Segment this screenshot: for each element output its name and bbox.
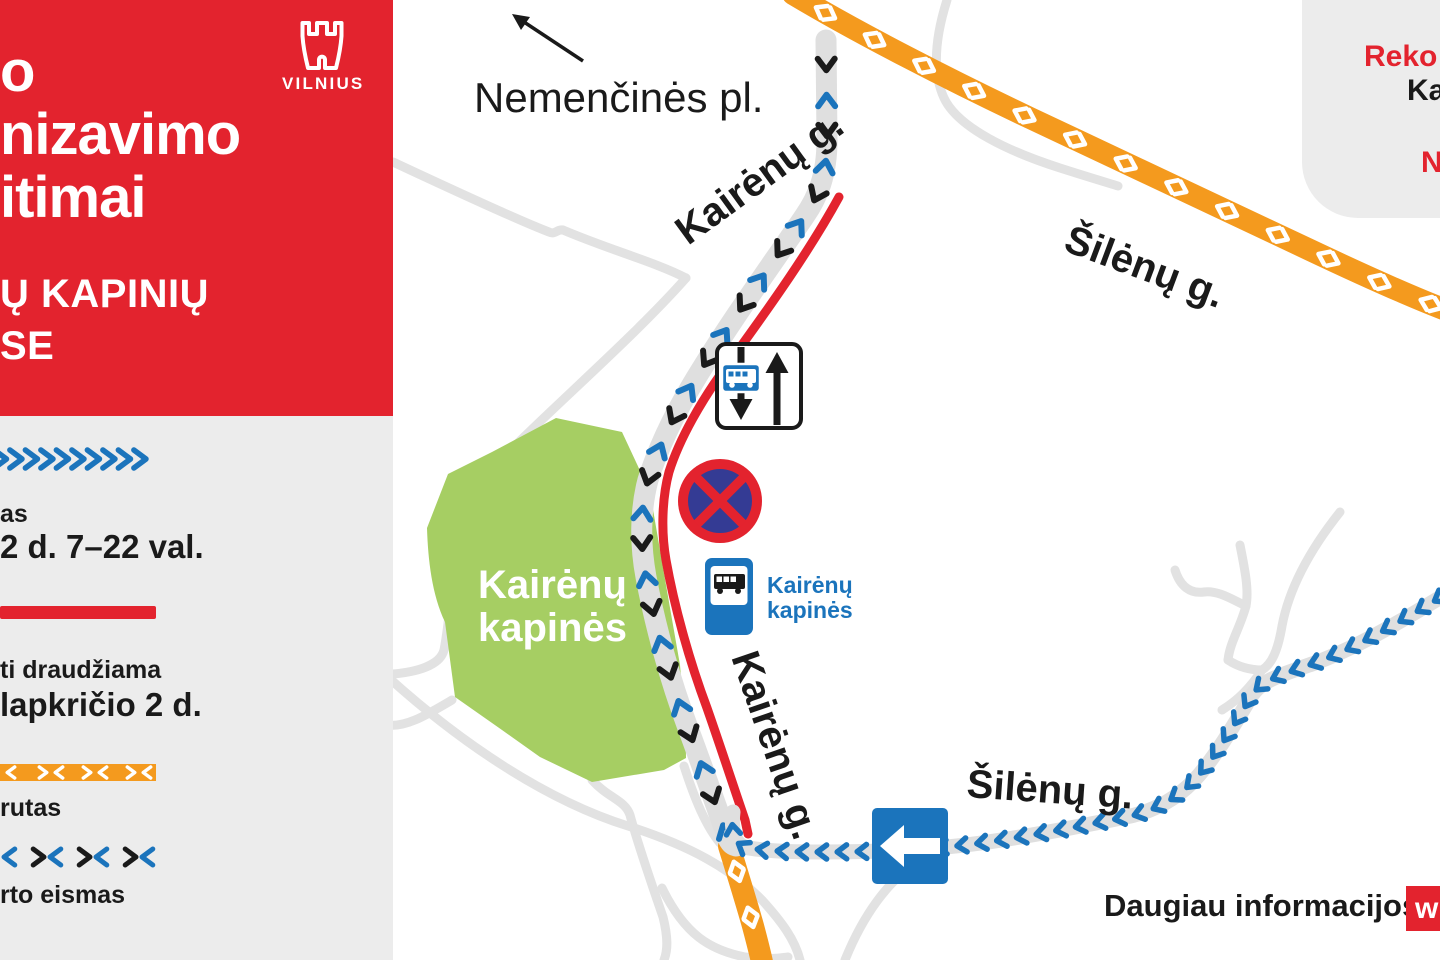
more-info-badge: w [1406,886,1440,931]
contraflow-bus-lane-sign [717,344,801,428]
vilnius-logo: VILNIUS [282,12,362,94]
bus-stop-label-line2: kapinės [767,597,853,623]
silenu-street-label-bottom: Šilėnų g. [965,760,1134,818]
cemetery-label-line2: kapinės [478,606,627,650]
poster-subtitle: Ų KAPINIŲ SE [0,268,209,372]
bus-stop-sign [705,558,753,635]
bus-icon [722,364,760,392]
one-way-sign [872,808,948,884]
card-line-3: N [1421,146,1440,180]
legend-oneway-sub: as [0,500,28,529]
cemetery-label-line1: Kairėnų [478,563,627,607]
one-way-route-icon [0,446,164,472]
legend-transit-sub: rto eismas [0,881,125,910]
legend-oneway-main: 2 d. 7–22 val. [0,528,204,566]
traffic-map-poster: Kairėnų kapinės [0,0,1440,960]
more-info-label: Daugiau informacijos [1104,888,1419,924]
one-way-chevrons [725,590,1440,859]
legend-detour-sub: rutas [0,794,61,823]
card-line-1: Reko [1364,40,1437,74]
detour-route-icon [0,764,156,781]
card-line-2: Ka [1407,74,1440,108]
recommendation-card: Reko Ka N [1302,0,1440,218]
vilnius-logo-text: VILNIUS [282,74,362,94]
no-stopping-line-icon [0,606,156,619]
poster-title: o nizavimo itimai [0,40,240,229]
legend: as 2 d. 7–22 val. ti draudžiama lapkriči… [0,416,393,960]
legend-nostopping-sub: ti draudžiama [0,656,161,685]
public-transport-icon [0,844,164,870]
no-stopping-sign [678,459,762,543]
silenu-street-label-top: Šilėnų g. [1059,215,1231,316]
bus-stop-label-line1: Kairėnų [767,572,853,598]
north-arrow-icon [512,14,583,61]
castle-icon [292,12,352,72]
legend-nostopping-main: lapkričio 2 d. [0,686,202,724]
title-panel: o nizavimo itimai Ų KAPINIŲ SE VILNIUS [0,0,393,416]
nemencines-road-label: Nemenčinės pl. [474,74,763,121]
